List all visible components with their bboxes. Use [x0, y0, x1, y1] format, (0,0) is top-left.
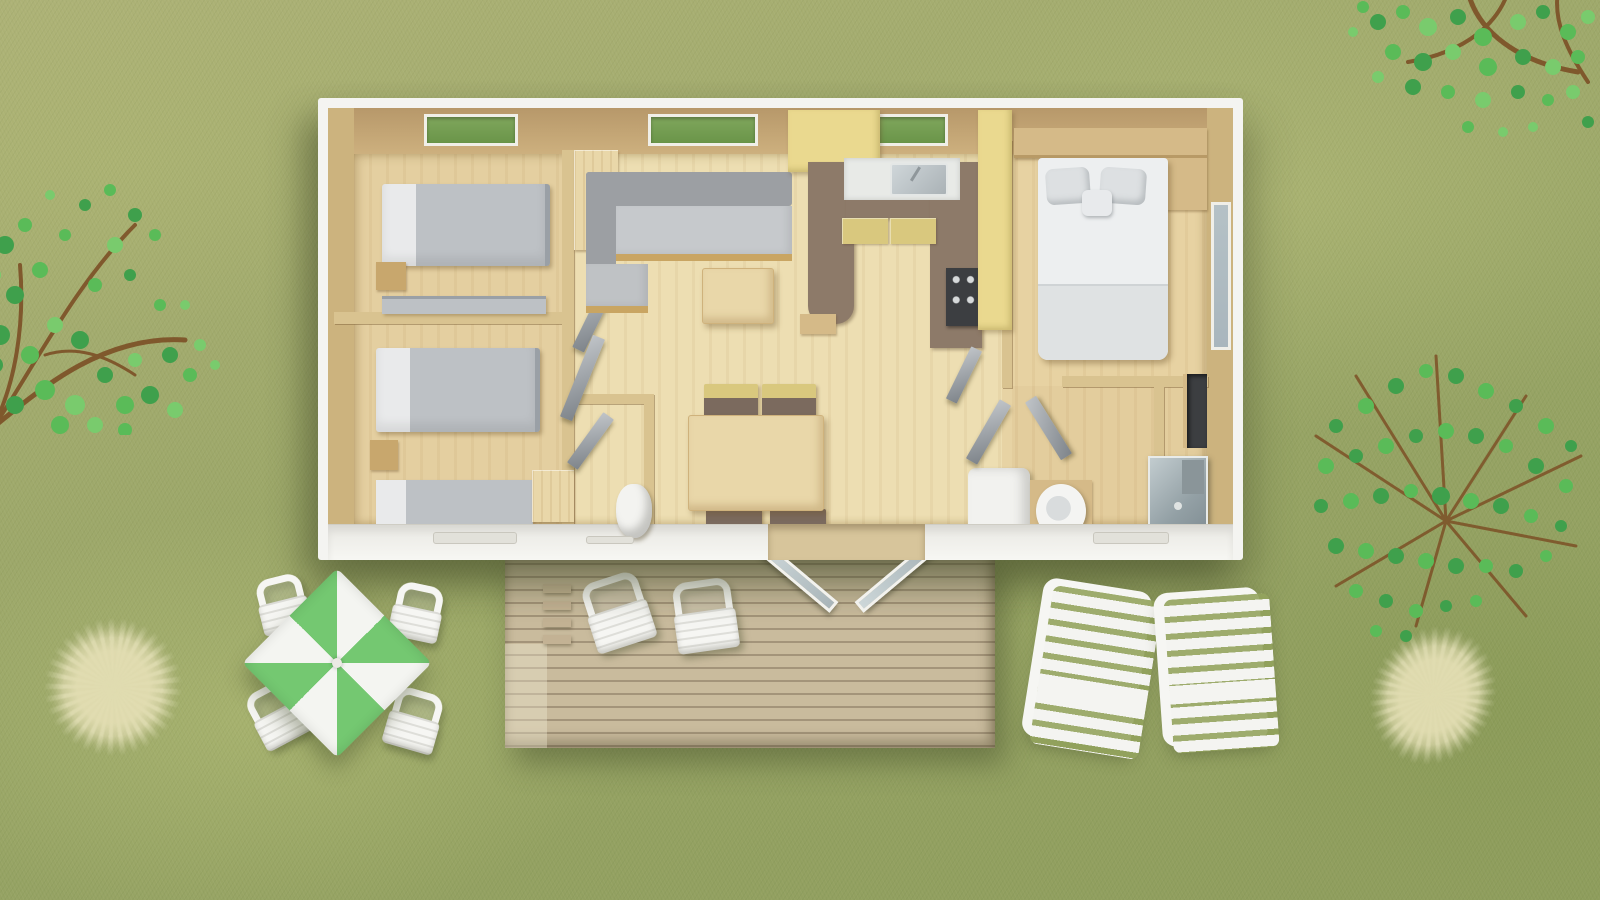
dry-grass-tuft-bottom-left — [18, 592, 208, 782]
cushion — [1082, 190, 1112, 216]
skylight-window-living — [648, 114, 758, 146]
sofa-chaise — [586, 264, 648, 310]
shower-drain — [1174, 502, 1182, 510]
single-bed-1 — [382, 184, 550, 266]
single-bed-4 — [376, 480, 533, 524]
dining-chair-top-1 — [704, 384, 758, 417]
shower-steel-wall — [1182, 460, 1204, 494]
stove-burners — [946, 268, 980, 326]
tree-right — [1296, 316, 1600, 652]
deck-chair — [667, 576, 743, 658]
campsite-scene — [0, 0, 1600, 900]
dining-chair-top-2 — [762, 384, 816, 417]
wall-wc-north — [574, 394, 652, 404]
mobile-home — [318, 98, 1243, 560]
sun-lounger-1 — [1020, 576, 1154, 751]
single-bed-2 — [382, 296, 546, 314]
peninsula-base — [800, 314, 836, 334]
headboard-shelf — [1014, 128, 1207, 158]
bottom-wall-window — [433, 532, 517, 544]
wardrobe — [1183, 374, 1207, 448]
tree-top-left — [0, 105, 255, 435]
bottom-wall-vent — [586, 536, 634, 544]
nightstand-master — [1162, 158, 1207, 210]
sofa-backrest — [586, 172, 792, 206]
deck-step — [543, 584, 571, 593]
double-bed — [1038, 158, 1168, 360]
wall-bedrooms-east — [562, 150, 574, 524]
chair-seat — [673, 607, 740, 655]
wood-deck — [505, 552, 995, 748]
patio-door-opening — [768, 524, 925, 560]
kitchen-tall-cabinet — [978, 110, 1012, 330]
sofa-chaise-base — [586, 306, 648, 313]
sofa-seat — [616, 206, 792, 258]
nightstand-bedroom2 — [370, 440, 398, 470]
deck-step — [543, 601, 571, 610]
deck-step — [543, 635, 571, 644]
duvet — [1038, 284, 1168, 360]
master-side-window — [1211, 202, 1231, 350]
skylight-window-bedroom1 — [424, 114, 518, 146]
kitchen-cabinet-face-1 — [842, 218, 888, 244]
coffee-table — [702, 268, 774, 324]
wall-bathroom-inner — [1154, 387, 1164, 463]
deck-step — [543, 618, 571, 627]
nightstand-bedroom1 — [376, 262, 406, 290]
small-cabinet-bedroom2 — [532, 470, 574, 522]
kitchen-cabinet-face-2 — [890, 218, 936, 244]
chair-frame — [704, 384, 758, 398]
dining-table — [688, 415, 824, 511]
toilet — [616, 484, 652, 538]
single-bed-3 — [376, 348, 540, 432]
tree-top-right — [1318, 0, 1600, 168]
sofa-wood-base — [616, 254, 792, 261]
skylight-window-kitchen — [876, 114, 948, 146]
chair-frame — [762, 384, 816, 398]
lounger-slats — [1163, 593, 1279, 754]
deck-light-edge — [505, 644, 547, 748]
bottom-wall-window-2 — [1093, 532, 1169, 544]
sun-lounger-2 — [1153, 586, 1269, 747]
